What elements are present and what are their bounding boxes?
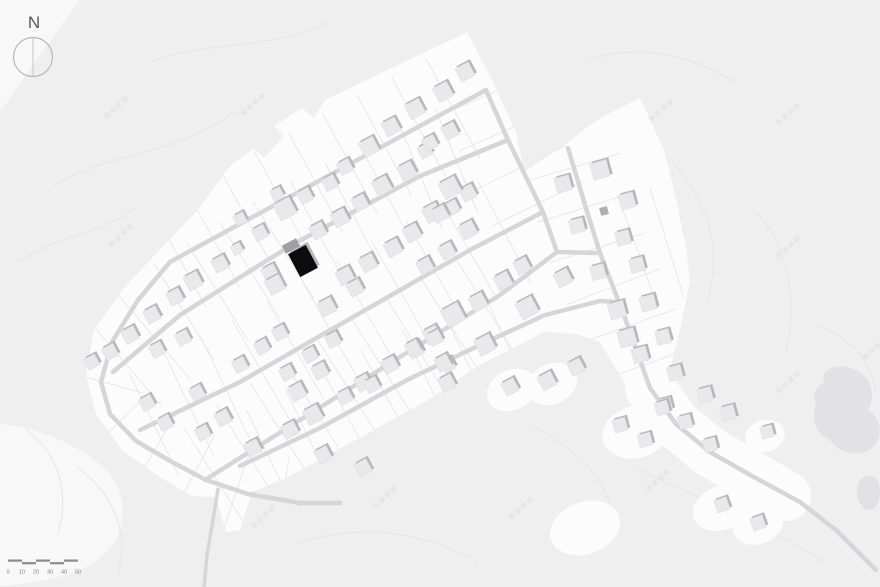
scale-bar-segment [36,560,50,562]
scale-label-50: 50 [75,570,81,576]
scale-label-40: 40 [61,570,67,576]
north-label: N [28,13,40,32]
scale-label-0: 0 [6,570,9,576]
scale-label-20: 20 [33,570,39,576]
road-junction-connector [557,252,597,253]
site-plan-svg: N 0 10 20 30 40 50 [0,0,880,587]
scale-label-30: 30 [47,570,53,576]
scale-bar-segment [22,562,36,564]
scale-bar-segment [64,560,78,562]
scale-bar-segment [50,562,64,564]
site-plan: N 0 10 20 30 40 50 [0,0,880,587]
scale-bar-segment [8,560,22,562]
scale-label-10: 10 [19,570,25,576]
